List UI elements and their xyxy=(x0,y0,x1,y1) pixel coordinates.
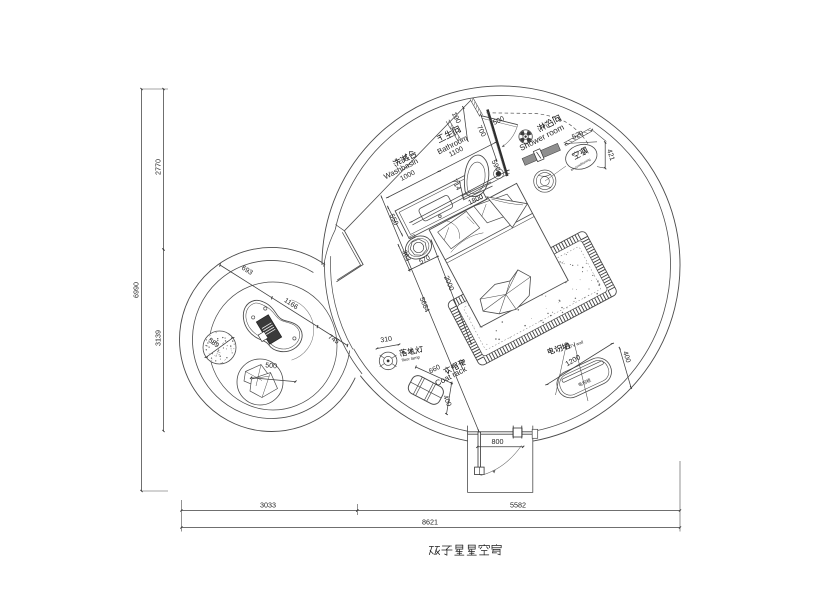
svg-text:500: 500 xyxy=(265,362,277,370)
svg-text:3139: 3139 xyxy=(154,330,163,346)
svg-text:2770: 2770 xyxy=(154,159,163,175)
svg-text:6990: 6990 xyxy=(132,282,141,298)
svg-text:8621: 8621 xyxy=(422,518,438,527)
svg-text:800: 800 xyxy=(492,437,504,446)
svg-text:3033: 3033 xyxy=(260,501,276,510)
svg-text:5582: 5582 xyxy=(510,501,526,510)
